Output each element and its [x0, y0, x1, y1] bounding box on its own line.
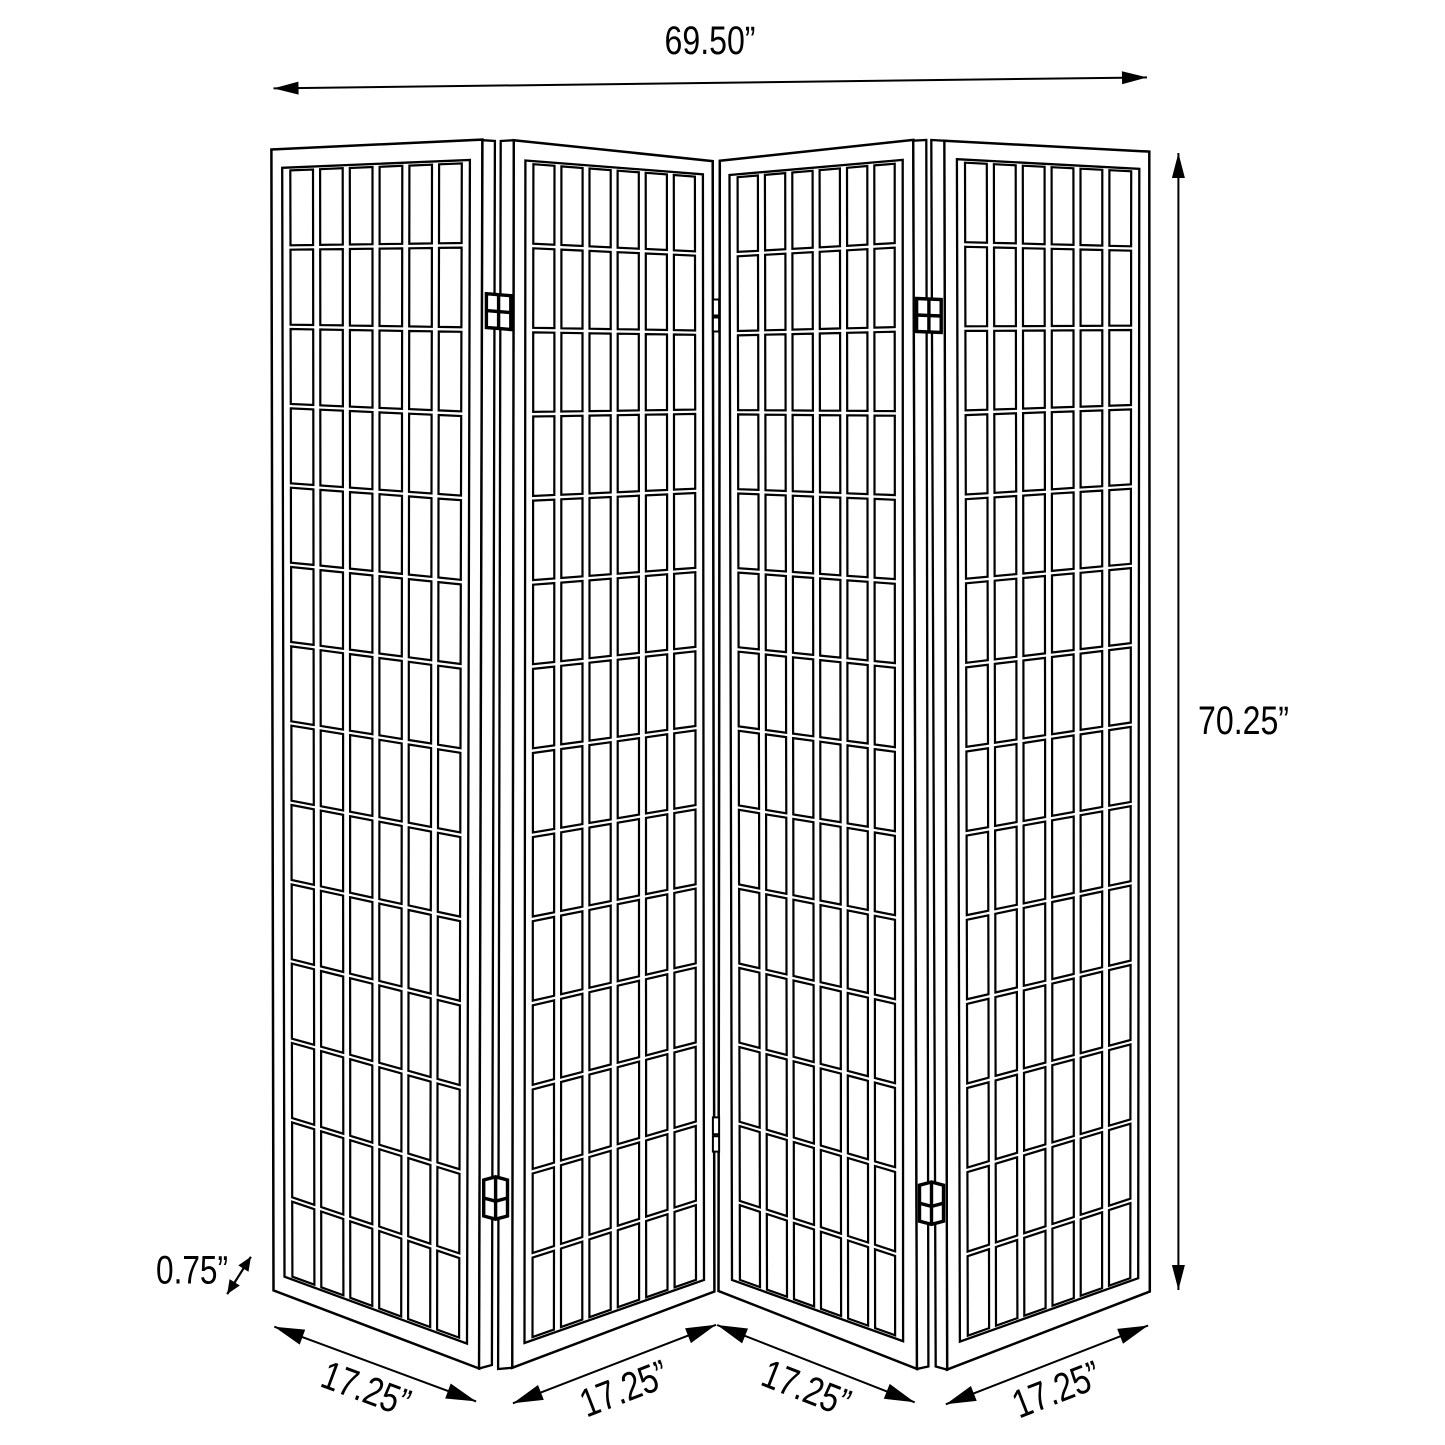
svg-text:69.50”: 69.50”	[665, 19, 756, 63]
svg-text:0.75”: 0.75”	[156, 1249, 228, 1293]
svg-text:70.25”: 70.25”	[1198, 699, 1289, 743]
